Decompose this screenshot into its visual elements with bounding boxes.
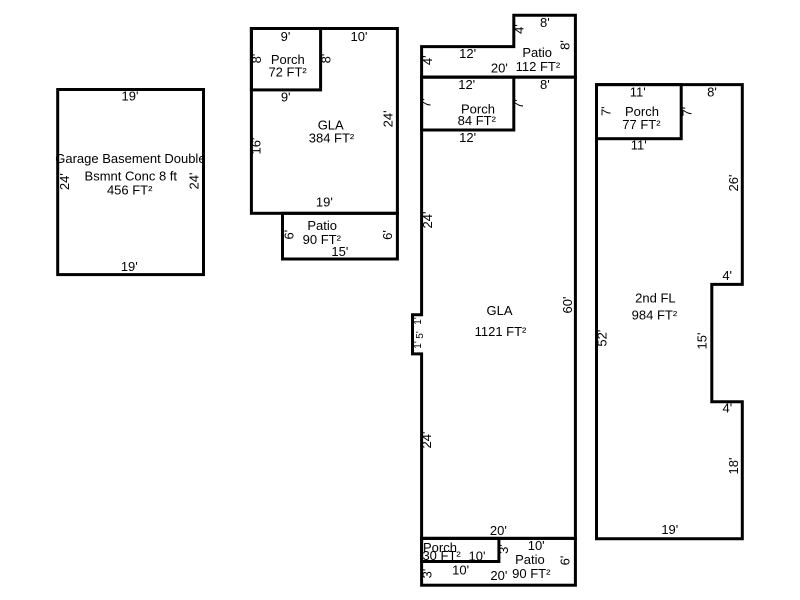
svg-text:11': 11' — [630, 84, 646, 99]
svg-text:10': 10' — [452, 562, 469, 577]
svg-text:Garage Basement Double: Garage Basement Double — [55, 151, 205, 166]
svg-text:7': 7' — [511, 99, 526, 109]
svg-text:984 FT²: 984 FT² — [632, 307, 678, 322]
svg-text:112 FT²: 112 FT² — [516, 59, 561, 74]
svg-text:3': 3' — [420, 569, 435, 579]
svg-text:18': 18' — [726, 458, 741, 475]
svg-text:24': 24' — [419, 432, 434, 449]
svg-text:90 FT²: 90 FT² — [512, 566, 551, 581]
svg-text:6': 6' — [558, 556, 573, 566]
svg-text:8': 8' — [319, 54, 334, 64]
svg-text:GLA: GLA — [486, 303, 512, 318]
svg-text:10': 10' — [528, 538, 545, 553]
svg-text:8': 8' — [249, 54, 264, 64]
svg-text:Bsmnt Conc 8 ft: Bsmnt Conc 8 ft — [85, 168, 178, 183]
svg-text:1': 1' — [413, 317, 424, 325]
svg-text:10': 10' — [469, 549, 486, 564]
svg-text:20': 20' — [491, 61, 508, 76]
svg-text:4': 4' — [723, 401, 733, 416]
svg-text:9': 9' — [281, 90, 291, 105]
svg-text:5': 5' — [415, 331, 426, 339]
svg-text:8': 8' — [540, 15, 550, 30]
svg-text:8': 8' — [707, 84, 717, 99]
svg-text:77 FT²: 77 FT² — [622, 117, 661, 132]
svg-text:1': 1' — [413, 341, 424, 349]
svg-text:16': 16' — [249, 138, 264, 155]
svg-text:60': 60' — [560, 297, 575, 314]
svg-text:15': 15' — [331, 244, 348, 259]
svg-text:19': 19' — [122, 89, 139, 104]
svg-text:15': 15' — [695, 333, 710, 350]
svg-text:24': 24' — [57, 173, 72, 190]
svg-text:9': 9' — [281, 29, 291, 44]
svg-text:3': 3' — [496, 544, 511, 554]
svg-text:19': 19' — [121, 259, 138, 274]
svg-text:10': 10' — [351, 29, 368, 44]
svg-text:19': 19' — [316, 195, 333, 210]
svg-text:Patio: Patio — [307, 218, 337, 233]
svg-text:384 FT²: 384 FT² — [309, 130, 355, 145]
svg-text:20': 20' — [490, 568, 507, 583]
svg-text:12': 12' — [459, 46, 476, 61]
svg-text:26': 26' — [726, 175, 741, 192]
svg-text:11': 11' — [631, 138, 647, 153]
svg-text:2nd FL: 2nd FL — [635, 290, 675, 305]
svg-text:7': 7' — [679, 107, 694, 117]
svg-text:8': 8' — [558, 40, 573, 50]
svg-text:6': 6' — [380, 230, 395, 240]
svg-text:24': 24' — [380, 110, 395, 127]
svg-text:4': 4' — [512, 24, 527, 34]
svg-text:24': 24' — [186, 173, 201, 190]
svg-text:4': 4' — [420, 55, 435, 65]
svg-text:12': 12' — [459, 130, 476, 145]
svg-text:12': 12' — [458, 77, 475, 92]
svg-text:20': 20' — [490, 523, 507, 538]
svg-text:84 FT²: 84 FT² — [458, 113, 497, 128]
svg-text:7': 7' — [599, 106, 614, 116]
svg-text:72 FT²: 72 FT² — [268, 65, 307, 80]
svg-text:8': 8' — [540, 77, 550, 92]
svg-text:1121 FT²: 1121 FT² — [475, 324, 527, 339]
svg-text:7': 7' — [419, 98, 434, 108]
svg-text:456 FT²: 456 FT² — [107, 182, 153, 197]
svg-text:24': 24' — [420, 212, 435, 229]
svg-text:19': 19' — [661, 522, 678, 537]
svg-text:6': 6' — [282, 230, 297, 240]
svg-text:Patio: Patio — [522, 45, 552, 60]
svg-text:52': 52' — [594, 330, 609, 347]
svg-text:30 FT²: 30 FT² — [422, 548, 461, 563]
svg-text:4': 4' — [722, 268, 732, 283]
